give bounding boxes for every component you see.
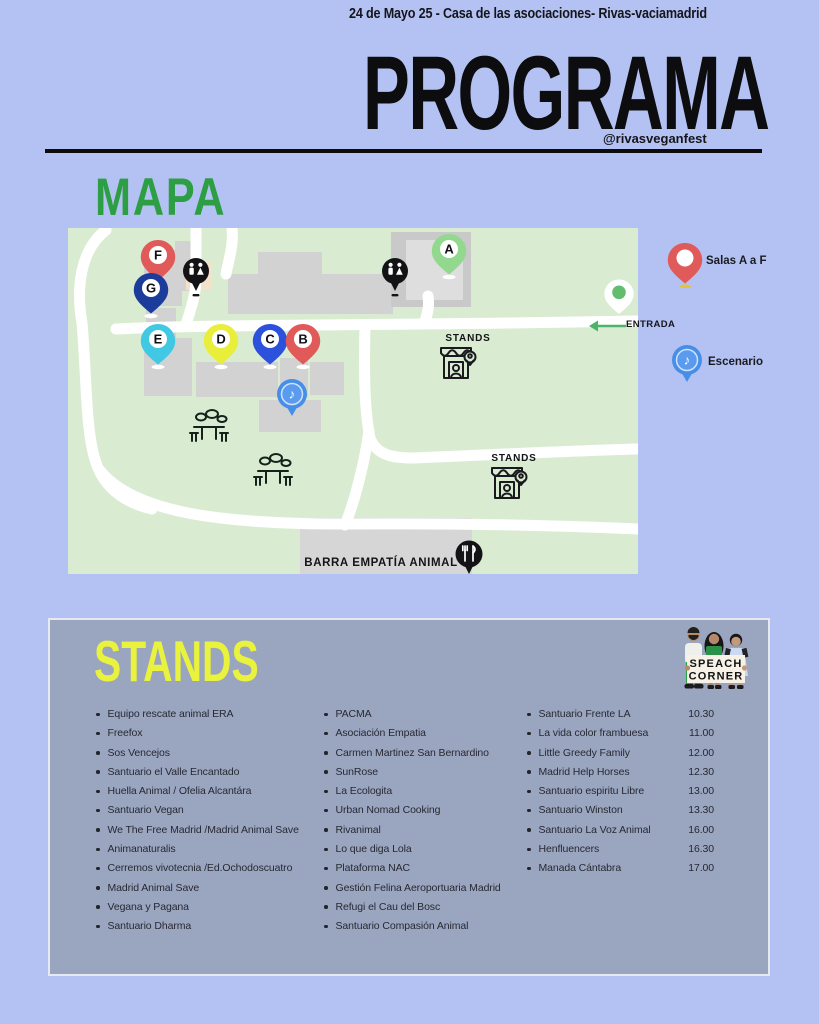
stand-name: Madrid Help Horses: [539, 766, 630, 778]
stand-name: Santuario espiritu Libre: [539, 785, 645, 797]
event-date-location: 24 de Mayo 25 - Casa de las asociaciones…: [349, 6, 697, 22]
stand-name: Santuario el Valle Encantado: [108, 766, 240, 778]
stand-list-item: Santuario Winston13.30: [527, 804, 714, 823]
bullet-dot: [96, 867, 100, 871]
stage-legend-pin-icon: [664, 342, 710, 388]
stand-list-item: Santuario La Voz Animal16.00: [527, 824, 714, 843]
bullet-dot: [96, 770, 100, 774]
svg-text:F: F: [154, 248, 162, 263]
stand-name: Madrid Animal Save: [108, 882, 200, 894]
stand-list-item: Cerremos vivotecnia /Ed.Ochodoscuatro: [96, 862, 321, 881]
svg-text:B: B: [298, 332, 307, 347]
stand-time: 16.30: [688, 843, 714, 855]
entrance-arrow-icon: [586, 318, 628, 334]
stand-time: 17.00: [688, 862, 714, 874]
svg-text:G: G: [146, 281, 156, 296]
stand-list-item: La vida color frambuesa11.00: [527, 727, 714, 746]
bullet-dot: [324, 905, 328, 909]
animal-empathy-bar-label: BARRA EMPATÍA ANIMAL: [304, 556, 457, 569]
bullet-dot: [324, 770, 328, 774]
stand-name: Little Greedy Family: [539, 747, 630, 759]
stand-list-item: We The Free Madrid /Madrid Animal Save: [96, 824, 321, 843]
stand-list-item: Santuario Dharma: [96, 920, 321, 939]
bullet-dot: [324, 848, 328, 852]
bullet-dot: [96, 732, 100, 736]
bullet-dot: [96, 713, 100, 717]
stand-list-item: Santuario el Valle Encantado: [96, 766, 321, 785]
stand-list-item: Animanaturalis: [96, 843, 321, 862]
bullet-dot: [324, 828, 328, 832]
stand-time: 16.00: [688, 824, 714, 836]
bullet-dot: [324, 809, 328, 813]
stand-list-item: Santuario Frente LA10.30: [527, 708, 714, 727]
stands-section-title: STANDS: [94, 634, 259, 692]
stand-list-item: PACMA: [324, 708, 524, 727]
map-section-title: MAPA: [95, 170, 226, 223]
stand-list-item: Gestión Felina Aeroportuaria Madrid: [324, 882, 524, 901]
stage-legend-label: Escenario: [708, 356, 763, 368]
stand-time: 12.00: [688, 747, 714, 759]
stand-list-item: Rivanimal: [324, 824, 524, 843]
stands-area-label: STANDS: [445, 333, 490, 344]
stand-list-item: Asociación Empatia: [324, 727, 524, 746]
picnic-area-icon: [190, 410, 228, 441]
site-map-canvas: ♪: [68, 228, 638, 574]
bullet-dot: [324, 732, 328, 736]
stand-name: Equipo rescate animal ERA: [108, 708, 234, 720]
stand-name: Gestión Felina Aeroportuaria Madrid: [336, 882, 501, 894]
bullet-dot: [96, 848, 100, 852]
stand-name: Vegana y Pagana: [108, 901, 189, 913]
stand-list-item: Manada Cántabra17.00: [527, 862, 714, 881]
bullet-dot: [96, 828, 100, 832]
stand-name: Refugi el Cau del Bosc: [336, 901, 441, 913]
stand-name: Santuario La Voz Animal: [539, 824, 651, 836]
stand-name: Sos Vencejos: [108, 747, 170, 759]
stand-name: Asociación Empatia: [336, 727, 426, 739]
header-divider: [45, 149, 762, 153]
stand-name: Cerremos vivotecnia /Ed.Ochodoscuatro: [108, 862, 293, 874]
bullet-dot: [324, 886, 328, 890]
stand-time: 13.00: [688, 785, 714, 797]
bullet-dot: [96, 925, 100, 929]
speech-corner-illustration: SPEACH CORNER: [672, 622, 764, 714]
stands-area-label-2: STANDS: [491, 453, 536, 464]
stand-list-item: Equipo rescate animal ERA: [96, 708, 321, 727]
stand-list-item: Huella Animal / Ofelia Alcantára: [96, 785, 321, 804]
svg-text:D: D: [216, 332, 225, 347]
svg-text:A: A: [444, 242, 454, 257]
stand-name: Santuario Dharma: [108, 920, 192, 932]
svg-text:CORNER: CORNER: [689, 671, 744, 683]
bullet-dot: [324, 790, 328, 794]
stands-store-icon: [441, 348, 476, 378]
bullet-dot: [324, 713, 328, 717]
bullet-dot: [96, 751, 100, 755]
bullet-dot: [527, 809, 531, 813]
stand-name: Huella Animal / Ofelia Alcantára: [108, 785, 252, 797]
stand-name: Lo que diga Lola: [336, 843, 412, 855]
stand-name: Manada Cántabra: [539, 862, 622, 874]
bullet-dot: [527, 770, 531, 774]
stands-list-column-2: PACMAAsociación EmpatiaCarmen Martinez S…: [324, 708, 524, 940]
stand-name: Rivanimal: [336, 824, 381, 836]
stand-list-item: Little Greedy Family12.00: [527, 747, 714, 766]
stand-time: 11.00: [689, 727, 714, 739]
stand-name: Plataforma NAC: [336, 862, 410, 874]
stand-list-item: Freefox: [96, 727, 321, 746]
stand-name: Urban Nomad Cooking: [336, 804, 441, 816]
svg-text:E: E: [154, 332, 163, 347]
bullet-dot: [527, 790, 531, 794]
stand-name: PACMA: [336, 708, 372, 720]
bullet-dot: [324, 867, 328, 871]
bullet-dot: [324, 751, 328, 755]
bullet-dot: [96, 905, 100, 909]
stand-list-item: La Ecologita: [324, 785, 524, 804]
event-program-poster: 24 de Mayo 25 - Casa de las asociaciones…: [0, 0, 819, 1024]
stand-list-item: Plataforma NAC: [324, 862, 524, 881]
bullet-dot: [527, 867, 531, 871]
bullet-dot: [324, 925, 328, 929]
stand-list-item: Henfluencers16.30: [527, 843, 714, 862]
stand-name: We The Free Madrid /Madrid Animal Save: [108, 824, 299, 836]
stands-section: STANDS: [48, 618, 770, 976]
bullet-dot: [96, 886, 100, 890]
stands-store-icon-2: [492, 468, 527, 498]
stand-list-item: Santuario Vegan: [96, 804, 321, 823]
stand-list-item: Sos Vencejos: [96, 747, 321, 766]
rooms-legend-label: Salas A a F: [706, 255, 767, 267]
stand-name: Santuario Compasión Animal: [336, 920, 469, 932]
stand-name: Santuario Frente LA: [539, 708, 631, 720]
picnic-area-icon-2: [254, 454, 292, 485]
stand-time: 13.30: [688, 804, 714, 816]
stand-name: Santuario Vegan: [108, 804, 184, 816]
stand-list-item: Madrid Help Horses12.30: [527, 766, 714, 785]
stand-name: Henfluencers: [539, 843, 600, 855]
svg-text:SPEACH: SPEACH: [689, 658, 742, 670]
bullet-dot: [527, 848, 531, 852]
stand-name: Carmen Martinez San Bernardino: [336, 747, 489, 759]
stand-name: Animanaturalis: [108, 843, 176, 855]
stand-list-item: Madrid Animal Save: [96, 882, 321, 901]
stand-time: 12.30: [688, 766, 714, 778]
stand-list-item: Carmen Martinez San Bernardino: [324, 747, 524, 766]
bullet-dot: [96, 809, 100, 813]
stand-list-item: Urban Nomad Cooking: [324, 804, 524, 823]
stand-list-item: Lo que diga Lola: [324, 843, 524, 862]
bullet-dot: [527, 751, 531, 755]
entrance-label: ENTRADA: [626, 319, 675, 330]
stand-list-item: SunRose: [324, 766, 524, 785]
social-handle: @rivasveganfest: [603, 131, 707, 146]
stands-list-column-1: Equipo rescate animal ERAFreefoxSos Venc…: [96, 708, 321, 940]
svg-text:C: C: [265, 332, 275, 347]
bullet-dot: [96, 790, 100, 794]
bullet-dot: [527, 828, 531, 832]
entrance-pin: [604, 280, 633, 314]
stand-list-item: Santuario Compasión Animal: [324, 920, 524, 939]
stands-schedule-column: Santuario Frente LA10.30La vida color fr…: [527, 708, 714, 882]
site-map: ♪: [68, 228, 638, 574]
stand-time: 10.30: [688, 708, 714, 720]
stand-list-item: Santuario espiritu Libre13.00: [527, 785, 714, 804]
stand-name: SunRose: [336, 766, 379, 778]
stand-list-item: Vegana y Pagana: [96, 901, 321, 920]
stand-name: Santuario Winston: [539, 804, 623, 816]
stand-list-item: Refugi el Cau del Bosc: [324, 901, 524, 920]
rooms-legend-pin-icon: [663, 240, 707, 288]
bullet-dot: [527, 732, 531, 736]
stand-name: La vida color frambuesa: [539, 727, 649, 739]
bullet-dot: [527, 713, 531, 717]
stand-name: La Ecologita: [336, 785, 393, 797]
stand-name: Freefox: [108, 727, 143, 739]
